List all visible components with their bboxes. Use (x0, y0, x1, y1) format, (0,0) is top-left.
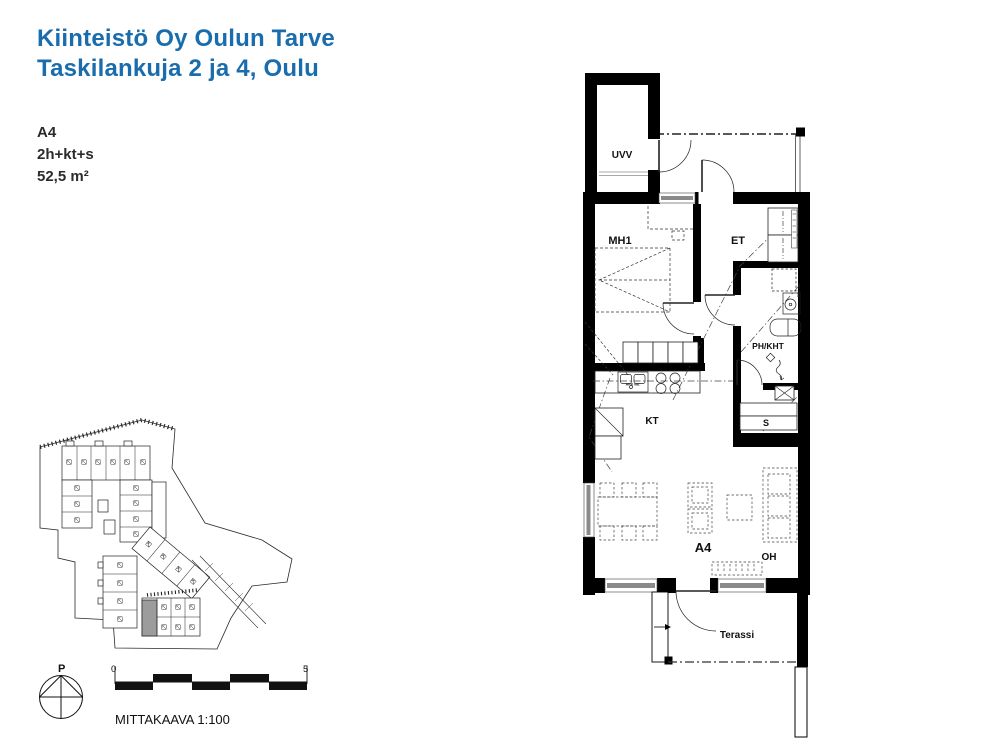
terrace (652, 592, 807, 737)
storage-shelf (599, 172, 648, 176)
sauna-stove (775, 386, 794, 400)
storage-door (659, 140, 691, 172)
scale-start: 0 (111, 664, 116, 675)
room-label-bedroom: MH1 (608, 235, 631, 247)
apartment-info: A4 2h+kt+s 52,5 m² (37, 122, 94, 188)
site-parking (192, 556, 266, 628)
bedroom-wardrobes (623, 342, 698, 363)
dining-set (598, 483, 657, 540)
compass: P (33, 660, 93, 730)
kitchen-tall-cabinets (595, 408, 623, 459)
room-label-bathroom: PH/KHT (752, 341, 784, 351)
apartment-room-config: 2h+kt+s (37, 144, 94, 166)
armchairs (688, 483, 712, 533)
room-label-terrace: Terassi (720, 630, 755, 641)
note-dishwasher: APK var. (626, 383, 641, 387)
plan-unit-label: A4 (695, 540, 712, 555)
floor-plan: UVV MH1 ET PH/KHT S KT A4 OH Terassi APK… (575, 60, 815, 750)
room-label-entry: ET (731, 235, 745, 247)
scale-end: 5 (303, 664, 308, 675)
project-title-line1: Kiinteistö Oy Oulun Tarve (37, 24, 335, 54)
kitchen-fixtures (595, 371, 700, 459)
project-title-line2: Taskilankuja 2 ja 4, Oulu (37, 54, 335, 84)
washer-reservation (772, 269, 796, 291)
site-buildings-mid (98, 556, 137, 628)
sauna-bench (740, 403, 797, 416)
coffee-table (727, 495, 752, 520)
kitchen-stove (656, 373, 680, 394)
room-label-living: OH (762, 552, 777, 563)
bathroom-fixtures (766, 269, 801, 380)
shower-hose (776, 360, 784, 380)
site-buildings-diagonal (132, 527, 210, 599)
project-title: Kiinteistö Oy Oulun Tarve Taskilankuja 2… (37, 24, 335, 84)
terrace-fence-post (795, 667, 807, 737)
sofa (763, 468, 797, 542)
entrance-door (702, 160, 734, 192)
room-label-kitchen: KT (645, 416, 658, 427)
floorplan-sheet: { "header": { "title_line1": "Kiinteistö… (0, 0, 1000, 750)
scale-caption: MITTAKAAVA 1:100 (115, 712, 230, 727)
site-buildings-north (62, 441, 166, 542)
terrace-door (676, 591, 716, 631)
porch-post (796, 128, 805, 137)
room-label-storage: UVV (612, 150, 633, 161)
scale-bar: 0 5 MITTAKAAVA 1:100 (108, 655, 323, 735)
room-label-sauna: S (763, 418, 769, 428)
washbasin (770, 319, 801, 336)
compass-north-label: P (58, 663, 65, 675)
tv-bench (712, 562, 762, 575)
site-plan (30, 413, 315, 653)
bedroom-door (663, 303, 694, 334)
floor-drain (766, 353, 774, 361)
site-highlighted-unit (142, 600, 157, 636)
bathroom-door (705, 295, 735, 325)
apartment-unit: A4 (37, 122, 94, 144)
doors (659, 140, 762, 631)
entrance-canopy (655, 128, 805, 193)
note-washer: PPK var. (797, 283, 801, 298)
apartment-area: 52,5 m² (37, 166, 94, 188)
bedroom-bed (595, 248, 670, 312)
entry-closets (768, 208, 798, 262)
